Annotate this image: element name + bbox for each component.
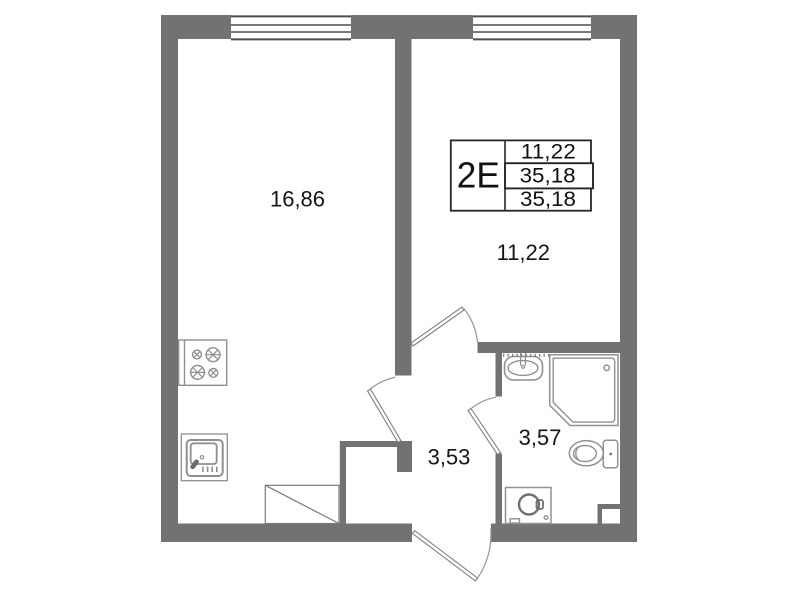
svg-text:3,57: 3,57 xyxy=(519,425,562,450)
svg-text:16,86: 16,86 xyxy=(270,187,325,212)
svg-text:35,18: 35,18 xyxy=(520,164,576,187)
svg-text:11,22: 11,22 xyxy=(497,240,550,265)
svg-text:2E: 2E xyxy=(457,155,500,196)
svg-text:11,22: 11,22 xyxy=(521,140,576,163)
svg-text:3,53: 3,53 xyxy=(428,445,471,470)
svg-text:35,18: 35,18 xyxy=(520,188,576,211)
